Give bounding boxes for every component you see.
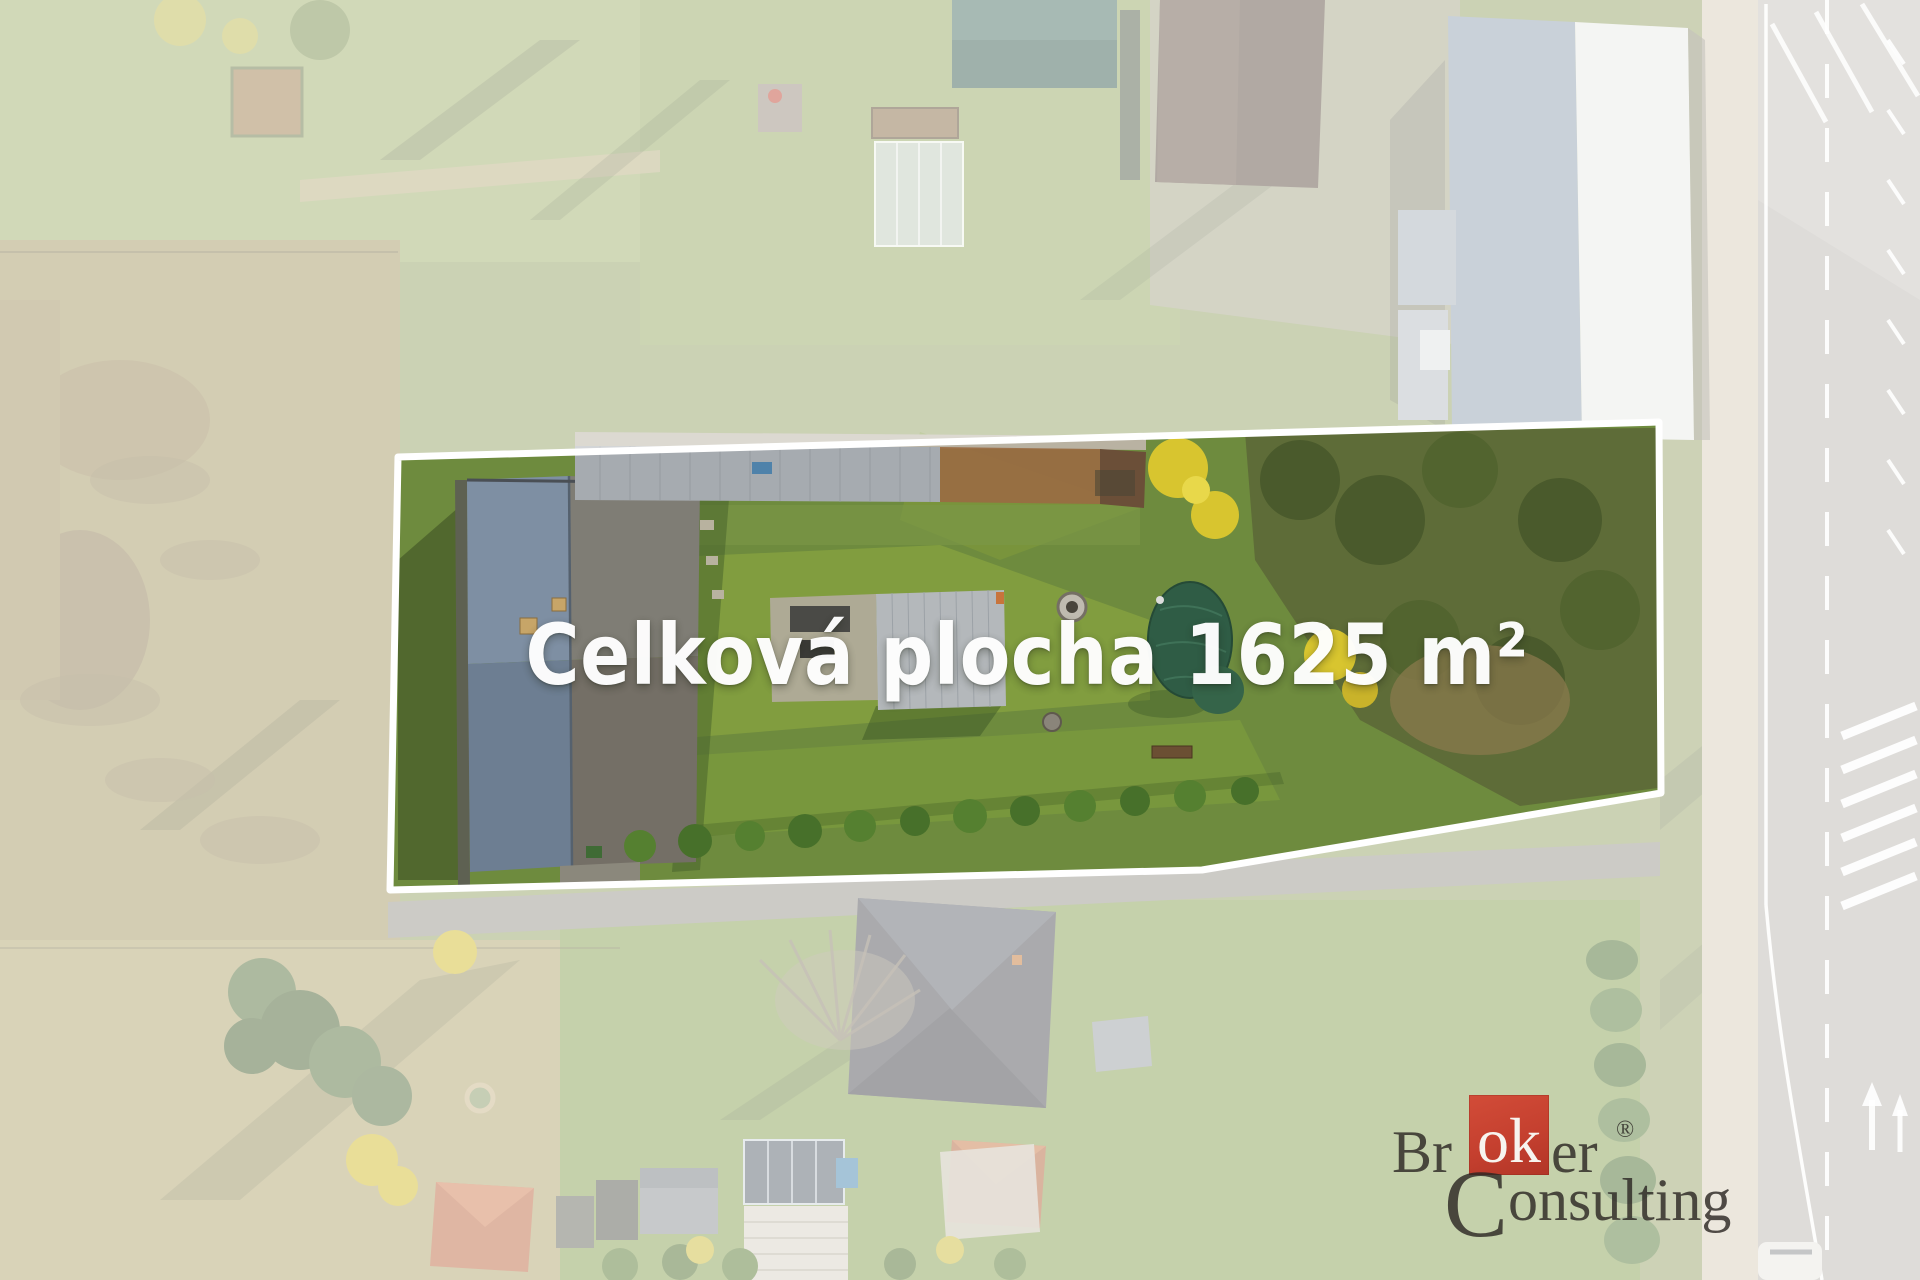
total-area-label: Celková plocha 1625 m²: [525, 606, 1528, 704]
aerial-property-photo: Celková plocha 1625 m² Br ok er ® C onsu…: [0, 0, 1920, 1280]
broker-consulting-watermark: Br ok er ® C onsulting: [1390, 1094, 1810, 1274]
watermark-word2-initial: C: [1444, 1156, 1508, 1252]
watermark-word1-prefix: Br: [1392, 1122, 1452, 1182]
registered-trademark-symbol: ®: [1616, 1118, 1634, 1142]
watermark-word2-rest: onsulting: [1508, 1170, 1731, 1230]
